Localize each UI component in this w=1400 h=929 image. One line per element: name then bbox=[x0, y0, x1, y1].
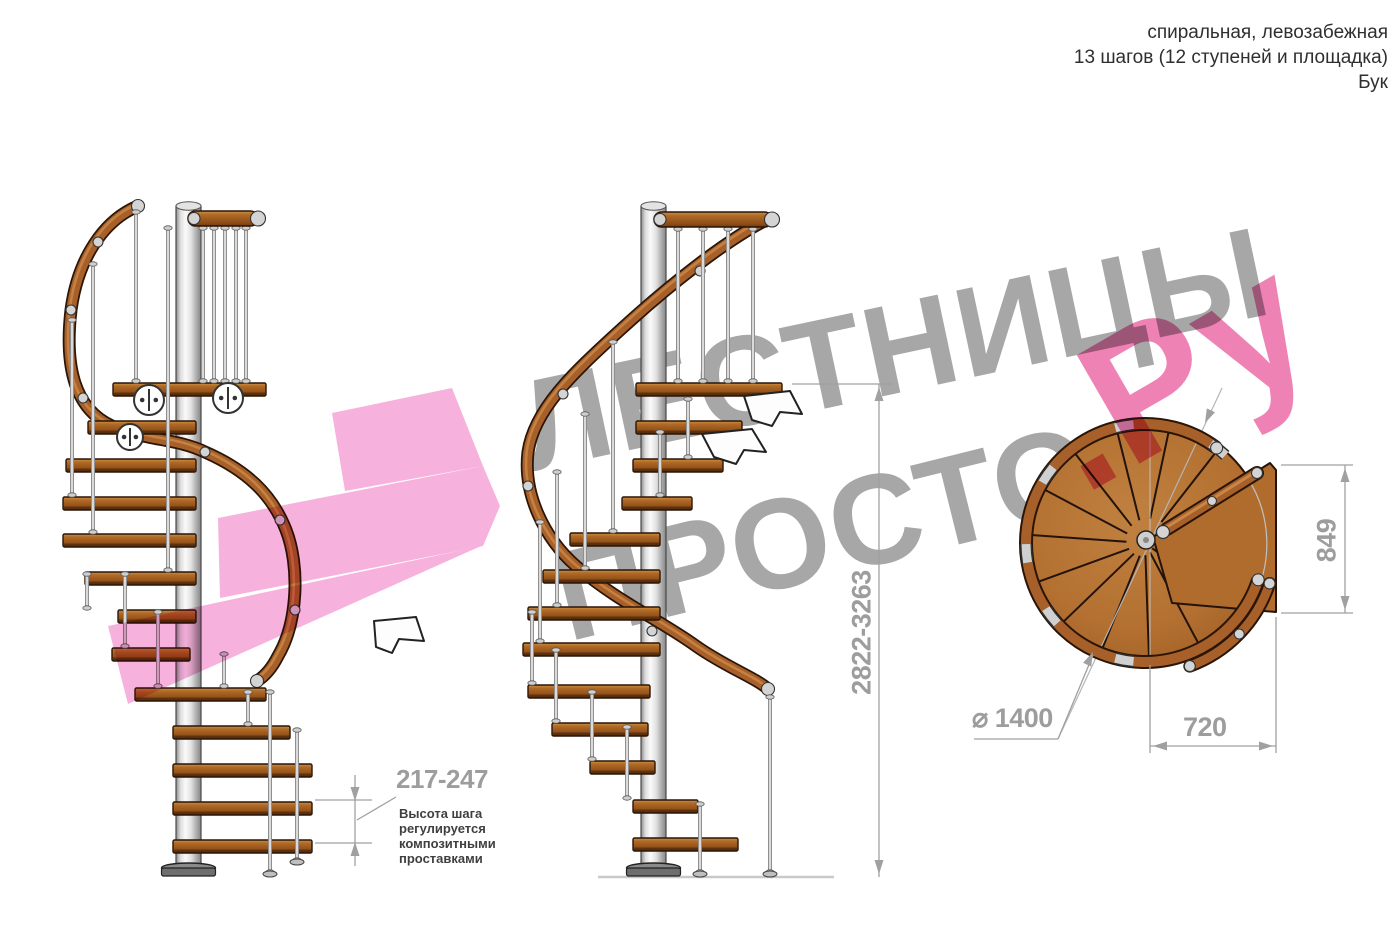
side-view-center bbox=[523, 202, 834, 877]
diameter-dimension: ⌀ 1400 bbox=[972, 703, 1053, 734]
note-line: Высота шага bbox=[399, 806, 496, 821]
step-height-dimension: 217-247 bbox=[396, 764, 488, 795]
note-line: проставками bbox=[399, 851, 496, 866]
title-block: спиральная, левозабежная 13 шагов (12 ст… bbox=[1074, 20, 1388, 95]
title-line-steps: 13 шагов (12 ступеней и площадка) bbox=[1074, 45, 1388, 70]
landing-width-dimension: 720 bbox=[1183, 712, 1227, 743]
landing-height-dimension: 849 bbox=[1312, 501, 1343, 581]
drawing-canvas: ЛЕСТНИЦЫ ПРОСТО .Ру спиральная, левозабе bbox=[0, 0, 1400, 929]
note-line: регулируется bbox=[399, 821, 496, 836]
title-line-type: спиральная, левозабежная bbox=[1074, 20, 1388, 45]
step-height-note: Высота шага регулируется композитными пр… bbox=[399, 806, 496, 866]
title-line-material: Бук bbox=[1074, 70, 1388, 95]
note-line: композитными bbox=[399, 836, 496, 851]
total-height-dimension: 2822-3263 bbox=[847, 563, 878, 703]
